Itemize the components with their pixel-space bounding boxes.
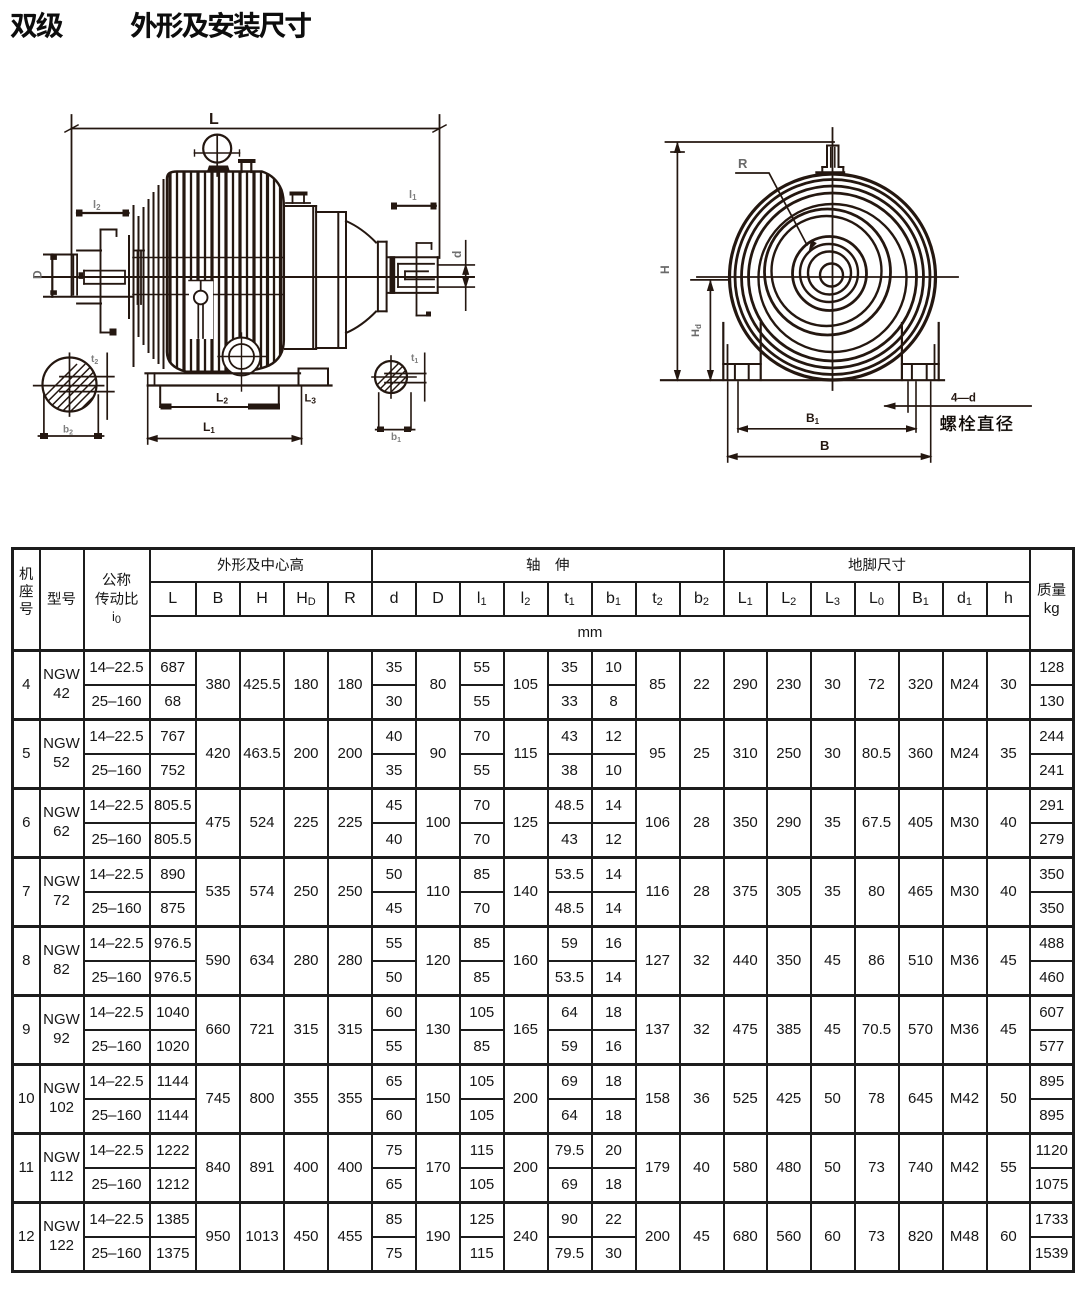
svg-text:L: L bbox=[209, 111, 219, 128]
svg-text:b2: b2 bbox=[63, 425, 73, 437]
svg-text:L1: L1 bbox=[203, 420, 215, 435]
svg-text:d: d bbox=[450, 251, 464, 258]
svg-text:D: D bbox=[31, 270, 45, 279]
svg-text:B: B bbox=[820, 438, 829, 453]
svg-text:Hd: Hd bbox=[690, 324, 703, 337]
svg-text:H: H bbox=[658, 265, 672, 274]
svg-text:l1: l1 bbox=[409, 189, 417, 202]
svg-text:l2: l2 bbox=[93, 199, 101, 212]
svg-text:B1: B1 bbox=[806, 411, 820, 426]
svg-text:L3: L3 bbox=[305, 393, 317, 406]
svg-text:R: R bbox=[738, 156, 748, 171]
svg-text:L2: L2 bbox=[216, 391, 228, 406]
svg-text:t1: t1 bbox=[411, 353, 418, 365]
svg-text:b1: b1 bbox=[391, 432, 401, 444]
svg-text:4—d: 4—d bbox=[951, 393, 976, 405]
svg-text:t2: t2 bbox=[91, 354, 98, 366]
